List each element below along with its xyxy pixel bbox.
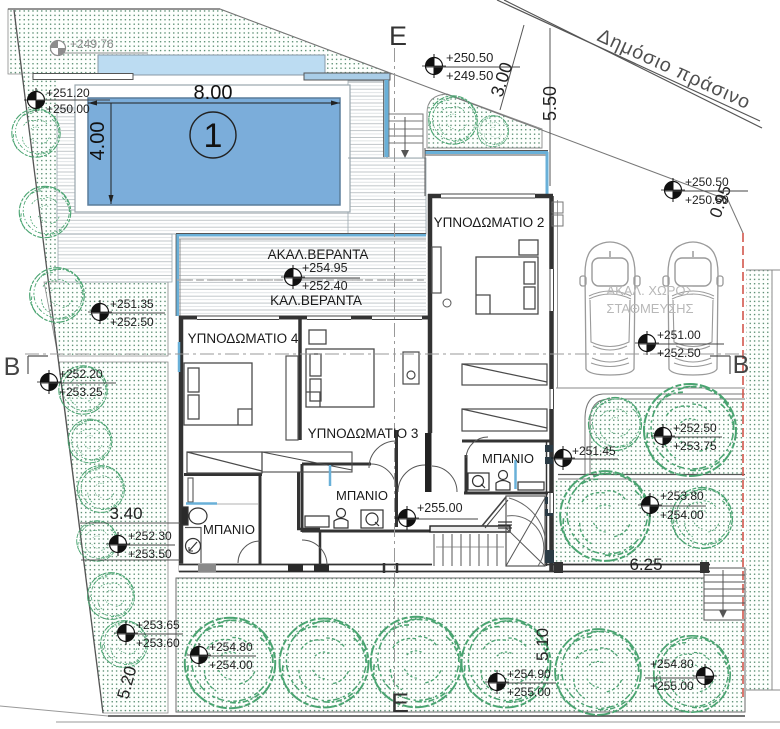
svg-text:+254.00: +254.00 — [660, 508, 704, 522]
svg-text:6.25: 6.25 — [629, 555, 662, 574]
svg-text:+252.50: +252.50 — [673, 421, 717, 435]
svg-text:ΥΠΝΟΔΩΜΑΤΙΟ 3: ΥΠΝΟΔΩΜΑΤΙΟ 3 — [308, 426, 419, 441]
svg-text:+252.40: +252.40 — [302, 279, 348, 293]
svg-text:+253.65: +253.65 — [136, 618, 180, 632]
svg-text:ΜΠΑΝΙΟ: ΜΠΑΝΙΟ — [482, 451, 534, 466]
svg-text:+254.90: +254.90 — [507, 667, 551, 681]
svg-text:+252.20: +252.20 — [59, 367, 103, 381]
svg-text:+249.76: +249.76 — [70, 37, 114, 51]
svg-text:ΚΑΛ.ΒΕΡΑΝΤΑ: ΚΑΛ.ΒΕΡΑΝΤΑ — [270, 293, 362, 308]
svg-text:ΥΠΝΟΔΩΜΑΤΙΟ 4: ΥΠΝΟΔΩΜΑΤΙΟ 4 — [188, 331, 299, 346]
svg-text:+251.35: +251.35 — [110, 297, 154, 311]
svg-text:ΥΠΝΟΔΩΜΑΤΙΟ 2: ΥΠΝΟΔΩΜΑΤΙΟ 2 — [434, 215, 545, 230]
svg-text:ΜΠΑΝΙΟ: ΜΠΑΝΙΟ — [336, 488, 388, 503]
svg-text:E: E — [391, 688, 409, 718]
svg-text:+252.30: +252.30 — [128, 529, 172, 543]
svg-text:+251.00: +251.00 — [657, 328, 701, 342]
svg-text:ΣΤΑΘΜΕΥΣΗΣ: ΣΤΑΘΜΕΥΣΗΣ — [606, 301, 693, 316]
svg-text:+251.20: +251.20 — [46, 86, 90, 100]
svg-text:3.40: 3.40 — [109, 504, 142, 523]
svg-text:ΜΠΑΝΙΟ: ΜΠΑΝΙΟ — [203, 522, 255, 537]
svg-text:+255.00: +255.00 — [507, 685, 551, 699]
svg-text:+250.50: +250.50 — [685, 175, 729, 189]
svg-text:+252.50: +252.50 — [657, 346, 701, 360]
svg-text:+252.50: +252.50 — [110, 315, 154, 329]
svg-text:ΑΚΑΛ.ΒΕΡΑΝΤΑ: ΑΚΑΛ.ΒΕΡΑΝΤΑ — [268, 247, 369, 262]
svg-text:+254.00: +254.00 — [209, 658, 253, 672]
svg-text:+254.80: +254.80 — [209, 640, 253, 654]
svg-text:+250.50: +250.50 — [446, 50, 493, 65]
svg-text:B: B — [733, 351, 750, 379]
svg-text:+250.50: +250.50 — [685, 193, 729, 207]
svg-text:+253.80: +253.80 — [660, 489, 704, 503]
svg-text:+253.50: +253.50 — [128, 547, 172, 561]
svg-text:+249.50: +249.50 — [446, 68, 493, 83]
svg-text:+253.75: +253.75 — [673, 439, 717, 453]
svg-text:4.00: 4.00 — [87, 122, 109, 161]
svg-text:E: E — [389, 21, 407, 51]
svg-text:+250.00: +250.00 — [46, 102, 90, 116]
svg-text:1: 1 — [204, 117, 223, 155]
svg-text:5.10: 5.10 — [533, 628, 552, 661]
svg-text:+251.45: +251.45 — [572, 444, 616, 458]
svg-text:+253.25: +253.25 — [59, 385, 103, 399]
svg-text:+255.00: +255.00 — [650, 679, 694, 693]
svg-text:+255.00: +255.00 — [417, 501, 463, 515]
svg-text:8.00: 8.00 — [194, 82, 233, 104]
svg-text:ΑΚΑΛ. ΧΩΡΟΣ: ΑΚΑΛ. ΧΩΡΟΣ — [606, 283, 693, 298]
svg-text:B: B — [4, 353, 21, 381]
svg-text:+253.60: +253.60 — [136, 636, 180, 650]
svg-text:5.50: 5.50 — [540, 86, 560, 121]
svg-text:+254.80: +254.80 — [650, 657, 694, 671]
svg-text:+254.95: +254.95 — [302, 261, 348, 275]
